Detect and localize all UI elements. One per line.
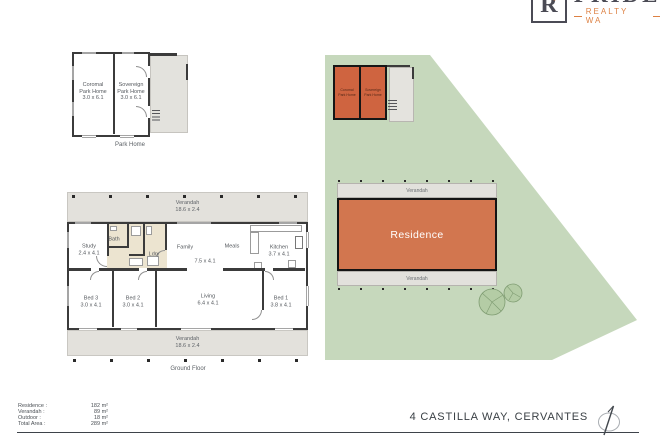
north-compass-icon <box>594 403 624 437</box>
room-dims: 3.0 x 6.1 <box>82 95 103 101</box>
trees-icon <box>471 281 535 331</box>
post <box>221 359 224 362</box>
kitchen-counter <box>250 225 302 232</box>
door-arc <box>96 256 107 267</box>
tagline-dash-left <box>574 16 582 17</box>
window <box>72 102 75 116</box>
pantry-fixture <box>288 260 296 268</box>
area-schedule: Residence : 182 m² Verandah : 89 m² Outd… <box>18 404 108 428</box>
post <box>426 288 428 290</box>
tagline-dash-right <box>653 16 660 17</box>
wall <box>412 67 414 79</box>
room-name: Family <box>177 245 193 251</box>
door-arc <box>265 271 274 280</box>
post <box>360 180 362 182</box>
room-name: Meals <box>225 244 240 250</box>
room-dims: 3.0 x 4.1 <box>80 302 101 308</box>
room-label-living: Living 6.4 x 4.1 <box>197 293 218 306</box>
room-label-bed2: Bed 2 3.0 x 4.1 <box>122 295 143 308</box>
room-name: Bed 3 <box>80 295 101 302</box>
door-arc <box>138 271 147 280</box>
room-label-sovereign: Sovereign Park Home 3.0 x 6.1 <box>117 82 145 102</box>
post <box>382 288 384 290</box>
window <box>82 135 96 138</box>
site-park-home-coromal: Coromal Park Home <box>335 67 361 118</box>
footer-divider <box>17 432 639 433</box>
room-dims: 3.8 x 4.1 <box>270 302 291 308</box>
ground-floor-outline: Study 2.4 x 4.1 Bath Ldry Family Meals 7… <box>67 222 308 330</box>
room-label-study: Study 2.4 x 4.1 <box>78 243 99 256</box>
ground-floor-plan: Verandah 18.6 x 2.4 <box>65 190 311 380</box>
wall <box>107 246 129 248</box>
unit-name: Coromal Park Home <box>337 88 357 97</box>
verandah-top: Verandah 18.6 x 2.4 <box>67 192 308 222</box>
door-arc <box>136 106 147 117</box>
post <box>257 195 260 198</box>
wall <box>147 268 187 271</box>
post <box>382 180 384 182</box>
park-home-plan: Coromal Park Home 3.0 x 6.1 Sovereign Pa… <box>68 52 192 152</box>
verandah-name: Verandah <box>176 200 200 207</box>
verandah-name: Verandah <box>406 188 427 194</box>
room-dims: 7.5 x 4.1 <box>194 259 215 265</box>
site-residence: Residence <box>337 198 497 271</box>
site-plan: Coromal Park Home Sovereign Park Home Ve… <box>325 55 640 360</box>
wall <box>165 224 167 250</box>
post <box>294 195 297 198</box>
door-arc <box>90 271 99 280</box>
basin-fixture <box>110 226 117 231</box>
window <box>122 52 134 55</box>
post <box>338 180 340 182</box>
post <box>147 359 150 362</box>
wall <box>186 64 189 80</box>
post <box>184 359 187 362</box>
site-annex <box>389 67 414 122</box>
post <box>72 195 75 198</box>
room-dims: 6.4 x 4.1 <box>197 300 218 306</box>
area-label: Total Area : <box>18 422 46 428</box>
post <box>183 195 186 198</box>
area-value: 289 m² <box>91 422 108 428</box>
toilet-fixture <box>146 226 152 235</box>
room-name: Bed 1 <box>270 295 291 302</box>
post <box>220 195 223 198</box>
room-name: Sovereign Park Home <box>117 82 145 95</box>
room-label-bath: Bath <box>108 237 119 244</box>
verandah-dims: 18.6 x 2.4 <box>175 207 199 214</box>
site-verandah-top: Verandah <box>337 183 497 198</box>
wall <box>143 224 145 254</box>
steps-icon <box>152 110 160 122</box>
room-name: Bath <box>108 237 119 243</box>
room-name: Living <box>197 293 218 300</box>
wall <box>150 53 177 56</box>
post <box>448 288 450 290</box>
wall <box>127 224 129 246</box>
post <box>295 359 298 362</box>
wall <box>99 268 139 271</box>
door-arc <box>252 310 262 320</box>
sink-fixture <box>295 236 303 249</box>
verandah-name: Verandah <box>176 336 200 343</box>
room-label-meals: Meals <box>225 244 240 251</box>
park-home-caption: Park Home <box>68 142 192 148</box>
window <box>306 232 309 248</box>
wall <box>223 268 265 271</box>
verandah-name: Verandah <box>406 276 427 282</box>
window <box>75 222 91 225</box>
room-label-ldry: Ldry <box>149 252 160 259</box>
wall <box>129 254 145 256</box>
post <box>470 180 472 182</box>
post <box>73 359 76 362</box>
brand-tagline-text: REALTY WA <box>586 7 649 25</box>
room-dims-family-meals: 7.5 x 4.1 <box>194 259 215 266</box>
property-address: 4 CASTILLA WAY, CERVANTES <box>400 411 588 423</box>
agency-logo: R PRIDE REALTY WA <box>531 0 660 25</box>
area-row-total: Total Area : 289 m² <box>18 422 108 428</box>
kitchen-counter <box>250 232 259 254</box>
window <box>120 135 134 138</box>
linen-fixture <box>129 258 143 266</box>
room-dims: 2.4 x 4.1 <box>78 250 99 256</box>
room-label-kitchen: Kitchen 3.7 x 4.1 <box>268 244 289 257</box>
brand-name: PRIDE <box>574 0 660 6</box>
room-label-bed1: Bed 1 3.8 x 4.1 <box>270 295 291 308</box>
wall <box>262 270 264 310</box>
logo-letter: R <box>540 0 557 17</box>
room-label-coromal: Coromal Park Home 3.0 x 6.1 <box>79 82 107 102</box>
room-label-family: Family <box>177 245 193 252</box>
post <box>258 359 261 362</box>
window <box>67 286 70 306</box>
verandah-dims: 18.6 x 2.4 <box>175 343 199 350</box>
unit-name: Sovereign Park Home <box>363 88 383 97</box>
ground-floor-caption: Ground Floor <box>65 366 311 372</box>
wall <box>387 65 410 67</box>
residence-label: Residence <box>390 229 443 241</box>
post <box>404 180 406 182</box>
window <box>67 232 70 248</box>
post <box>448 180 450 182</box>
door-arc <box>136 66 147 77</box>
room-name: Coromal Park Home <box>79 82 107 95</box>
post <box>109 195 112 198</box>
logo-monogram-box: R <box>531 0 567 23</box>
room-dims: 3.7 x 4.1 <box>268 251 289 257</box>
window <box>279 222 297 225</box>
post <box>426 180 428 182</box>
window <box>177 222 211 225</box>
room-name: Ldry <box>149 252 160 258</box>
post <box>338 288 340 290</box>
post <box>360 288 362 290</box>
room-dims: 3.0 x 6.1 <box>120 95 141 101</box>
post <box>404 288 406 290</box>
room-dims: 3.0 x 4.1 <box>122 302 143 308</box>
room-label-bed3: Bed 3 3.0 x 4.1 <box>80 295 101 308</box>
room-name: Study <box>78 243 99 250</box>
window <box>82 52 96 55</box>
brand-tagline: REALTY WA <box>574 7 660 25</box>
wall <box>113 54 115 134</box>
floorplan-page: R PRIDE REALTY WA <box>0 0 660 440</box>
window <box>306 286 309 306</box>
wall <box>273 268 305 271</box>
shower-fixture <box>131 226 141 236</box>
site-park-home-block: Coromal Park Home Sovereign Park Home <box>333 65 387 120</box>
wall <box>69 268 91 271</box>
room-name: Bed 2 <box>122 295 143 302</box>
post <box>492 180 494 182</box>
site-park-home-sovereign: Sovereign Park Home <box>361 67 385 118</box>
wall <box>155 270 157 327</box>
steps-icon <box>388 100 397 111</box>
window <box>72 66 75 80</box>
post <box>146 195 149 198</box>
logo-text: PRIDE REALTY WA <box>574 0 660 25</box>
room-name: Kitchen <box>268 244 289 251</box>
park-home-outline: Coromal Park Home 3.0 x 6.1 Sovereign Pa… <box>72 52 150 137</box>
post <box>110 359 113 362</box>
verandah-bottom: Verandah 18.6 x 2.4 <box>67 330 308 356</box>
wall <box>112 270 114 327</box>
